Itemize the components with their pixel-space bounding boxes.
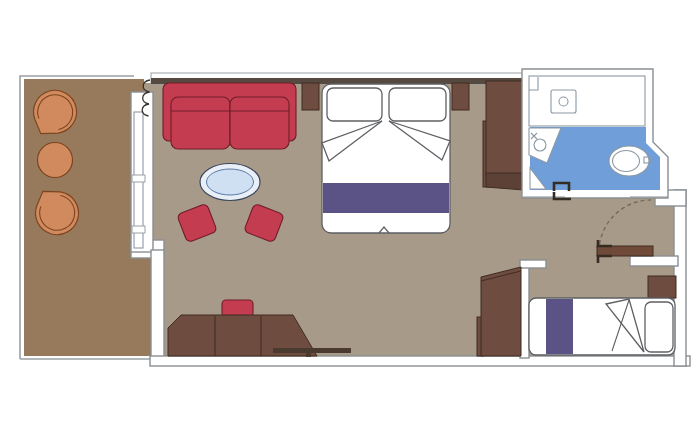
double-bed-pillow-right [389, 88, 446, 121]
balcony-table [38, 143, 73, 178]
second-bedroom-top-wall-left [520, 260, 546, 268]
bottom-wall [150, 356, 690, 366]
second-bedroom-top-wall-right [630, 256, 678, 266]
window-divider-lower [132, 226, 145, 233]
single-bed-pillow [645, 302, 673, 352]
nightstand-left [302, 83, 319, 110]
wardrobe-upper-body [486, 81, 524, 175]
desk-shelf-bar [273, 348, 351, 353]
bathroom [522, 69, 668, 199]
window-divider-upper [132, 175, 145, 182]
sofa [163, 83, 296, 149]
shower-fixture [551, 90, 576, 113]
double-bed-runner [323, 183, 449, 213]
coffee-table [200, 164, 260, 201]
sofa-cushion-left [171, 97, 230, 149]
sofa-cushion-right [230, 97, 289, 149]
desk-stool [222, 300, 253, 317]
wardrobe-lower-body [481, 267, 521, 356]
left-lower-wall [151, 250, 164, 362]
second-bedroom-nightstand [648, 276, 676, 298]
toilet [609, 146, 650, 176]
double-bed-group [302, 83, 469, 233]
floor-plan-canvas [0, 0, 700, 433]
entry-door-leaf [597, 246, 653, 256]
nightstand-right [452, 83, 469, 110]
wardrobe-upper [483, 81, 524, 190]
coffee-table-glass [207, 169, 254, 195]
floor-plan-drawing [0, 0, 700, 433]
single-bed-runner [546, 299, 573, 354]
desk-shelf-tick [306, 352, 311, 357]
shower-tub [529, 76, 645, 126]
wardrobe-upper-base [486, 173, 524, 190]
double-bed-pillow-left [327, 88, 382, 121]
wardrobe-lower [477, 267, 521, 356]
